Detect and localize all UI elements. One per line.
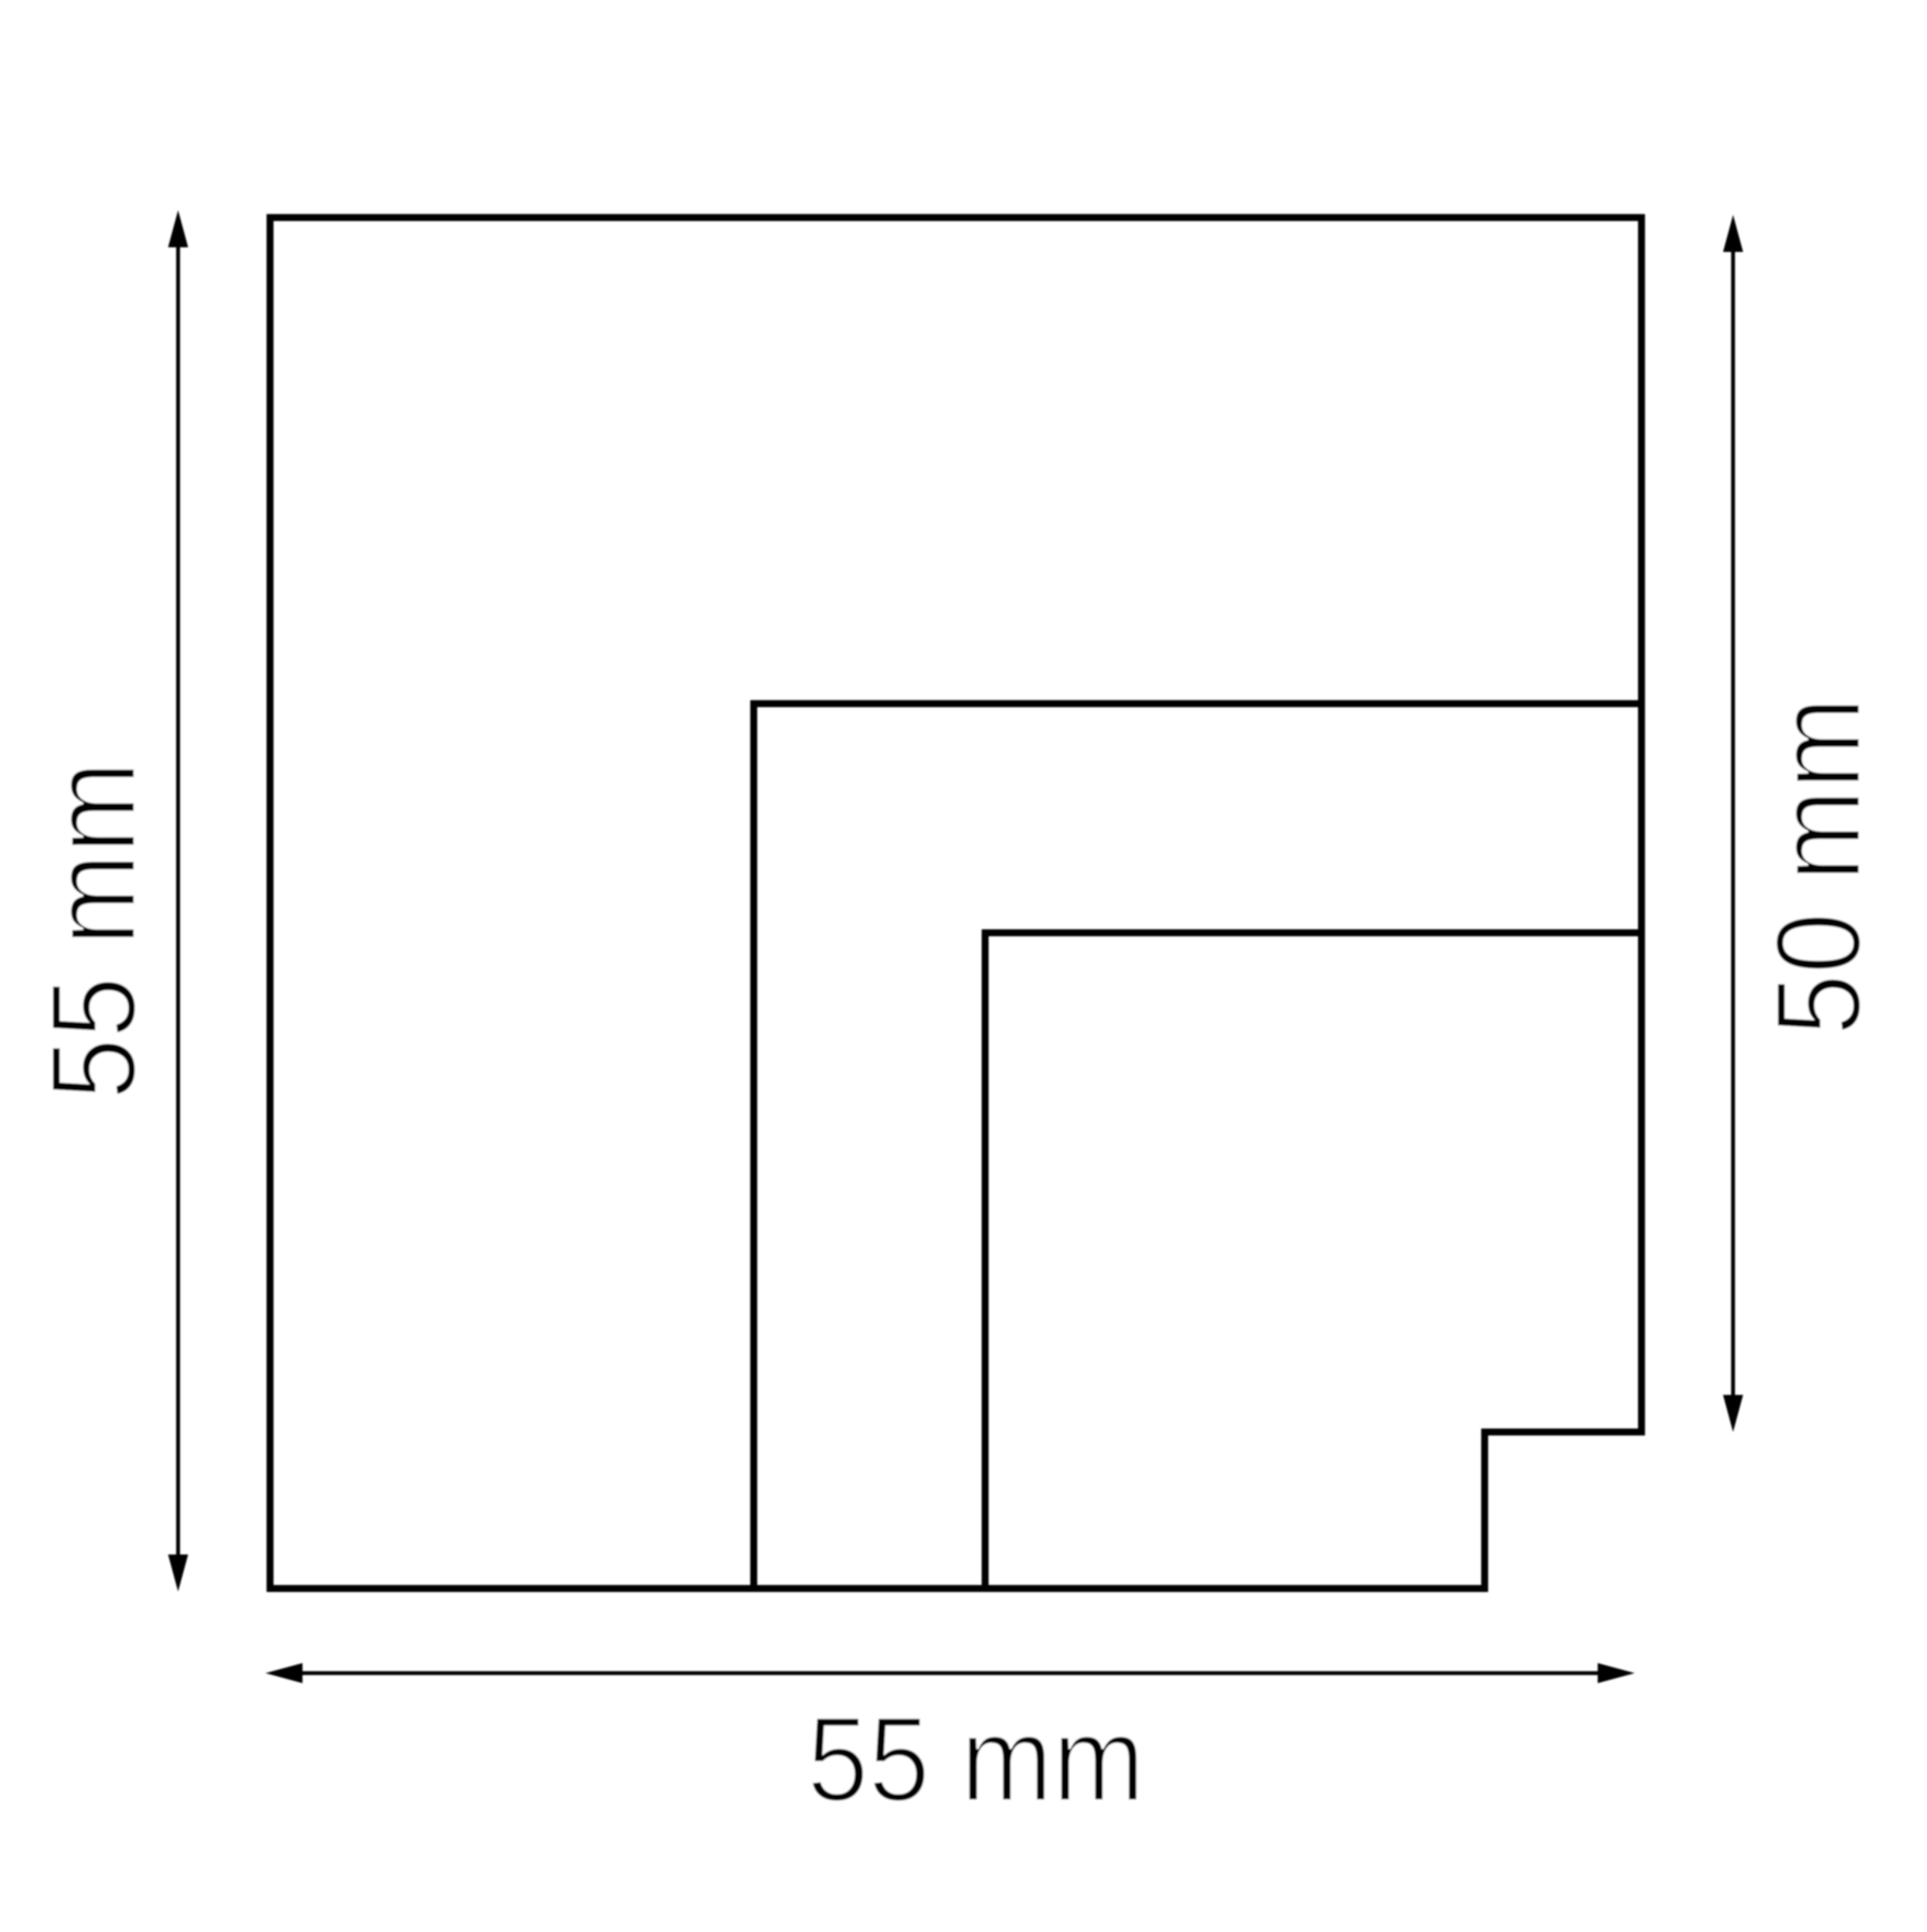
svg-text:50 mm: 50 mm bbox=[1752, 697, 1886, 1036]
svg-text:55 mm: 55 mm bbox=[27, 761, 161, 1100]
svg-text:55 mm: 55 mm bbox=[807, 1692, 1145, 1827]
